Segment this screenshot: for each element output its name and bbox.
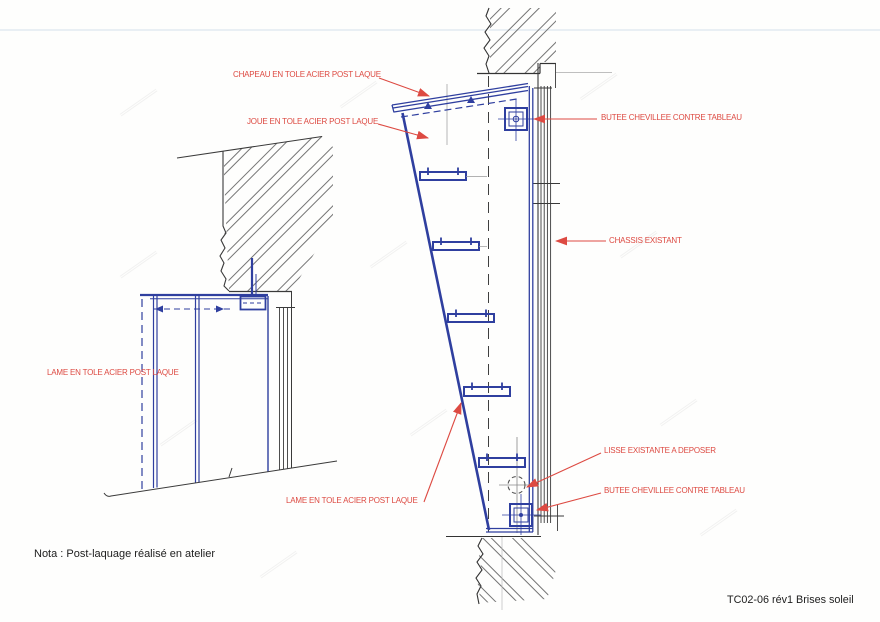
left-existing-chassis-lines (276, 292, 295, 470)
annotation-chassis: CHASSIS EXISTANT (609, 236, 682, 245)
lame-bottom-leader-line (424, 403, 461, 502)
technical-drawing-sheet: CHAPEAU EN TOLE ACIER POST LAQUE JOUE EN… (0, 0, 880, 622)
centerline (447, 76, 536, 610)
chapeau-leader-line (379, 78, 429, 96)
annotation-lisse: LISSE EXISTANTE A DEPOSER (604, 446, 716, 455)
left-section-view (104, 136, 337, 496)
top-wall-hatch (477, 8, 612, 74)
butee-bottom-leader-line (537, 493, 601, 510)
annotation-butee-top: BUTEE CHEVILLEE CONTRE TABLEAU (601, 113, 742, 122)
left-wall-hatch (177, 136, 333, 292)
bottom-wall-hatch (446, 537, 560, 605)
joue-leader-line (378, 124, 428, 138)
annotation-chapeau: CHAPEAU EN TOLE ACIER POST LAQUE (233, 70, 381, 79)
joue-frame (392, 84, 533, 533)
lame-blades (420, 168, 525, 468)
chassis-existant-lines (533, 63, 564, 535)
drawing-linework (0, 0, 880, 622)
drawing-title: TC02-06 rév1 Brises soleil (727, 594, 854, 606)
annotation-lame-left: LAME EN TOLE ACIER POST LAQUE (47, 368, 179, 377)
right-elevation-view (392, 8, 612, 610)
nota-text: Nota : Post-laquage réalisé en atelier (34, 548, 215, 560)
annotation-lame-bottom: LAME EN TOLE ACIER POST LAQUE (286, 496, 418, 505)
left-ground-break-line (104, 461, 337, 496)
leader-lines (378, 78, 606, 510)
butee-top-detail (498, 99, 534, 141)
annotation-butee-bottom: BUTEE CHEVILLEE CONTRE TABLEAU (604, 486, 745, 495)
annotation-joue: JOUE EN TOLE ACIER POST LAQUE (247, 117, 378, 126)
